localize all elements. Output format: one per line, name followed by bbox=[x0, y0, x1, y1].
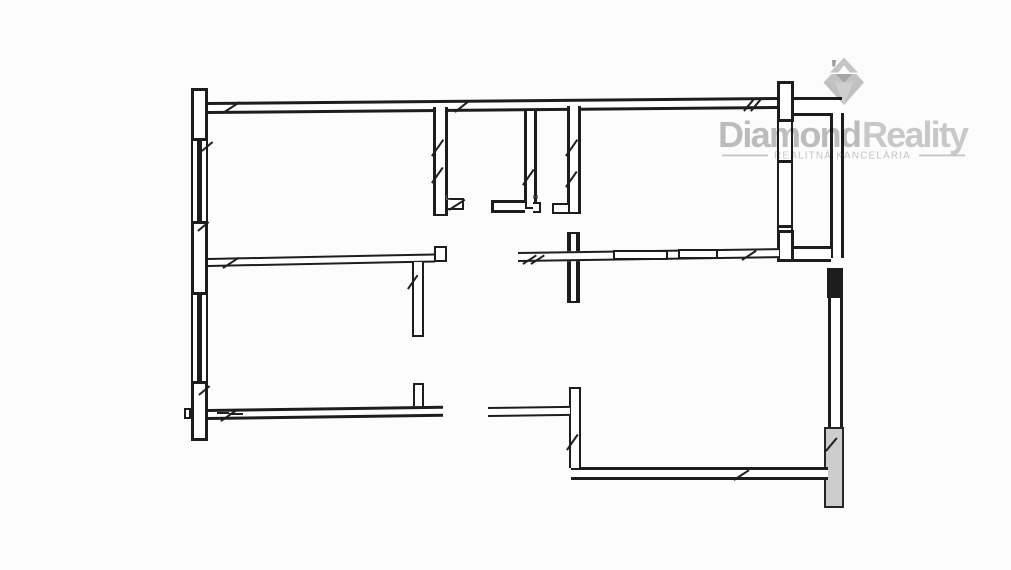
svg-text:REALITNÁ KANCELÁRIA: REALITNÁ KANCELÁRIA bbox=[774, 149, 913, 162]
svg-text:Diamond: Diamond bbox=[718, 114, 862, 155]
svg-text:Reality: Reality bbox=[862, 114, 969, 155]
